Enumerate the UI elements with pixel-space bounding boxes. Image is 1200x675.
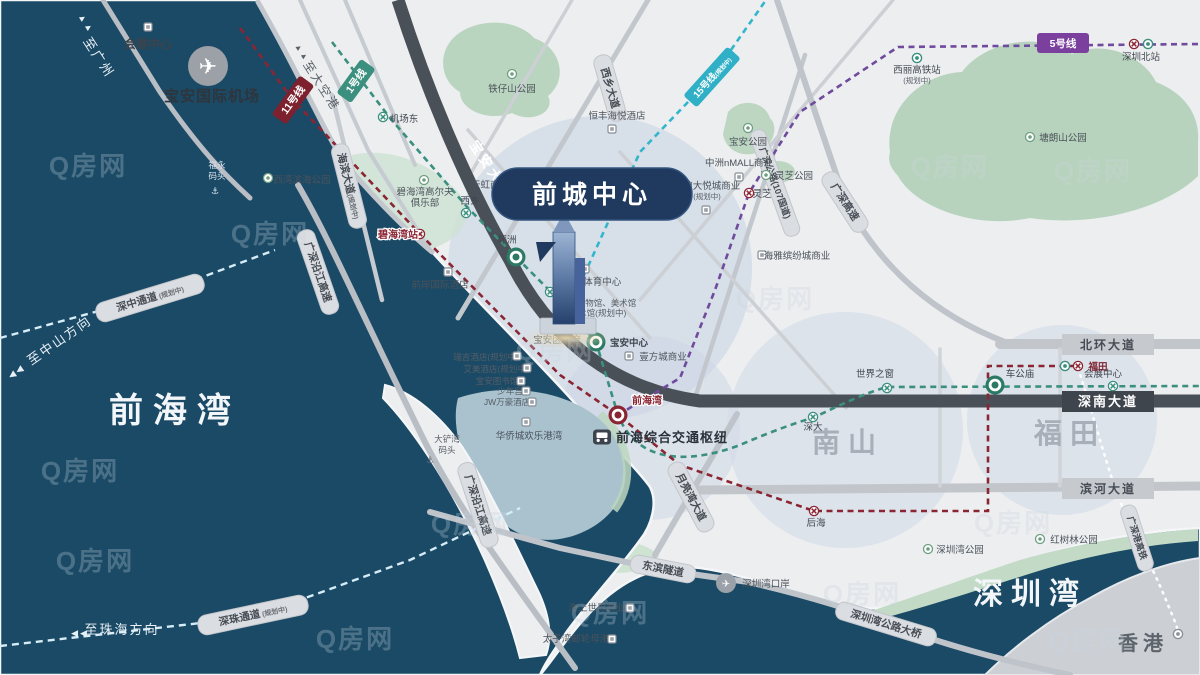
qianhai-hub-label: 前海综合交通枢纽 (616, 430, 728, 445)
dachanwan-anchor-icon: ⚓ (426, 455, 434, 465)
zhongliang-icon (702, 206, 710, 214)
szw-port-label: 深圳湾口岸 (742, 578, 790, 590)
shaoniangong-label: 少年宫 (497, 386, 523, 396)
fuyong-anchor-icon: ⚓ (211, 186, 219, 196)
svg-text:Q房网: Q房网 (911, 152, 989, 182)
yifangcheng-icon (625, 352, 633, 360)
fuyong-label-2: 码头 (208, 171, 226, 181)
shaoniangong-icon (522, 387, 530, 395)
qianan-hotel-icon (444, 268, 452, 276)
station-label-xili-planned: (规划中) (903, 75, 931, 85)
zhongzhou-mall-icon (735, 173, 743, 181)
dachanwan-label-1: 大铲湾 (434, 434, 460, 444)
station-icon-pingzhou (507, 248, 526, 267)
hengfeng-hotel-icon (608, 125, 616, 133)
station-label-xili-hsr: 西丽高铁站 (893, 64, 941, 76)
baoan-library-label: 宝安图书馆 (476, 376, 519, 386)
road-badge-shennan: 深南大道 (1062, 391, 1154, 412)
golf-icon (420, 176, 429, 185)
tanglangshan-park-label: 塘朗山公园 (1039, 132, 1087, 144)
xiwan-park-label: 西湾滨海公园 (273, 174, 330, 186)
station-icon-jichangdong (378, 112, 387, 121)
lingzhi-park-label: 灵芝公园 (775, 170, 813, 182)
map-svg: 西乡大道 广深公路(107国道) 广深高速 广深沿江高速 广深沿江高速 海滨大道… (0, 0, 1200, 675)
dir-to-zhuhai: 至珠海方向 (84, 622, 159, 637)
station-label-window-of-world: 世界之窗 (856, 368, 894, 380)
svg-text:Q房网: Q房网 (49, 151, 127, 181)
qianan-hotel-label: 前岸国际酒店 (411, 279, 468, 291)
golf-label-1: 碧海湾高尔夫 (396, 186, 454, 198)
baoan-park-label: 宝安公园 (729, 136, 767, 148)
oct-harbor-icon (522, 418, 530, 426)
map-canvas: 西乡大道 广深公路(107国道) 广深高速 广深沿江高速 广深沿江高速 海滨大道… (0, 0, 1200, 675)
station-icon-futian-x (1073, 361, 1082, 370)
svg-text:Q房网: Q房网 (1054, 156, 1132, 186)
baoan-park-icon (744, 124, 753, 133)
svg-text:Q房网: Q房网 (41, 456, 119, 486)
landmark-tower-wing (575, 258, 585, 324)
area-label-shenzhen-bay: 深圳湾 (973, 577, 1087, 611)
svg-text:Q房网: Q房网 (1049, 626, 1127, 656)
zhongliang-label-2: (规划中) (693, 191, 721, 201)
svg-text:Q房网: Q房网 (431, 509, 509, 539)
station-icon-shenzhen-north-o (1143, 39, 1152, 48)
tiezishan-park-icon (508, 70, 517, 79)
landmark-title: 前城中心 (532, 180, 652, 209)
station-icon-houhai (809, 506, 818, 515)
qianhai-hub-icon (593, 430, 611, 445)
road-badge-beihuan: 北环大道 (1062, 334, 1154, 355)
area-label-futian: 福田 (1033, 418, 1106, 449)
station-label-lingzhi: 灵芝 (752, 188, 772, 200)
dir-to-zhuhai-arrows: ◀◀ (71, 628, 89, 638)
station-label-baoan-center: 宝安中心 (610, 337, 649, 349)
tanglangshan-park-icon (1026, 133, 1035, 142)
szw-port-icon: ✈ (722, 579, 730, 590)
ruiji-hotel-label: 瑞吉酒店(规划中) (453, 352, 518, 362)
station-label-bihaiwan: 碧海湾站 (377, 228, 418, 241)
station-icon-xili-hsr (912, 53, 921, 62)
station-icon-xixiang (461, 208, 470, 217)
svg-text:深南大道: 深南大道 (1078, 394, 1138, 409)
golf-label-2: 俱乐部 (411, 197, 440, 209)
station-icon-shenda (808, 412, 817, 421)
prince-bay-label: 太子湾邮轮母港 (543, 633, 610, 645)
svg-text:Q房网: Q房网 (231, 219, 309, 249)
airplane-icon: ✈ (199, 54, 217, 79)
fuyong-label-1: 福永 (208, 160, 226, 170)
station-label-futian: 福田 (1087, 361, 1107, 373)
convention-center-label: 会展中心 (124, 36, 172, 51)
convention-center-icon (144, 23, 152, 31)
station-label-shenzhen-north: 深圳北站 (1122, 51, 1161, 63)
tiezishan-park-label: 铁仔山公园 (488, 83, 536, 95)
station-label-houhai: 后海 (806, 517, 826, 529)
station-icon-qianhaiwan (609, 406, 628, 425)
yifangcheng-label: 壹方城商业 (639, 351, 687, 363)
xiwan-park-icon (264, 174, 273, 183)
hengfeng-hotel-label: 恒丰海悦酒店 (588, 110, 645, 122)
szw-park-label: 深圳湾公园 (936, 544, 984, 556)
svg-text:Q房网: Q房网 (736, 284, 814, 314)
station-icon-window-of-world (882, 383, 891, 392)
haiya-label: 海雅缤纷城商业 (764, 250, 831, 262)
svg-text:Q房网: Q房网 (316, 624, 394, 654)
svg-text:Q房网: Q房网 (974, 508, 1052, 538)
svg-text:Q房网: Q房网 (823, 579, 901, 609)
zhongzhou-mall-label: 中洲nMALL商业 (705, 157, 773, 169)
station-icon-convention-station (1108, 381, 1117, 390)
prince-bay-icon (608, 635, 616, 643)
station-label-pingzhou: 坪洲 (497, 234, 516, 246)
landmark-tower (553, 232, 575, 324)
hsr-terminal-icon (1173, 629, 1182, 638)
road-badge-binhe: 滨河大道 (1062, 478, 1154, 499)
station-icon-futian-o (1060, 361, 1069, 370)
jw-marriott-label: JW万豪酒店 (484, 397, 531, 407)
svg-text:5号线: 5号线 (1050, 37, 1077, 50)
station-icon-shenzhen-north-x (1129, 39, 1138, 48)
svg-text:Q房网: Q房网 (56, 546, 134, 576)
lingzhi-park-icon (762, 171, 771, 180)
mangrove-park-label: 红树林公园 (1050, 534, 1098, 546)
baoan-library-icon (517, 377, 525, 385)
svg-text:Q房网: Q房网 (571, 598, 649, 628)
station-label-qianhaiwan: 前海湾 (632, 394, 662, 407)
station-label-xixiang: 西乡 (460, 196, 479, 207)
svg-text:Q房网: Q房网 (516, 336, 594, 366)
area-label-qianhai-bay: 前海湾 (109, 391, 241, 430)
airport-label: 宝安国际机场 (164, 87, 260, 105)
station-label-chegongmiao: 车公庙 (1006, 368, 1035, 380)
station-label-jichangdong: 机场东 (390, 113, 419, 125)
area-label-nanshan: 南山 (812, 427, 884, 458)
metro-badge-line5: 5号线 (1037, 33, 1089, 53)
szw-park-icon (924, 545, 933, 554)
svg-text:北环大道: 北环大道 (1080, 337, 1136, 352)
jw-marriott-icon (528, 398, 536, 406)
svg-text:滨河大道: 滨河大道 (1080, 481, 1136, 496)
oct-harbor-label: 华侨城欢乐港湾 (496, 430, 563, 442)
station-icon-chegongmiao (986, 376, 1005, 395)
dachanwan-label-2: 码头 (438, 445, 456, 455)
